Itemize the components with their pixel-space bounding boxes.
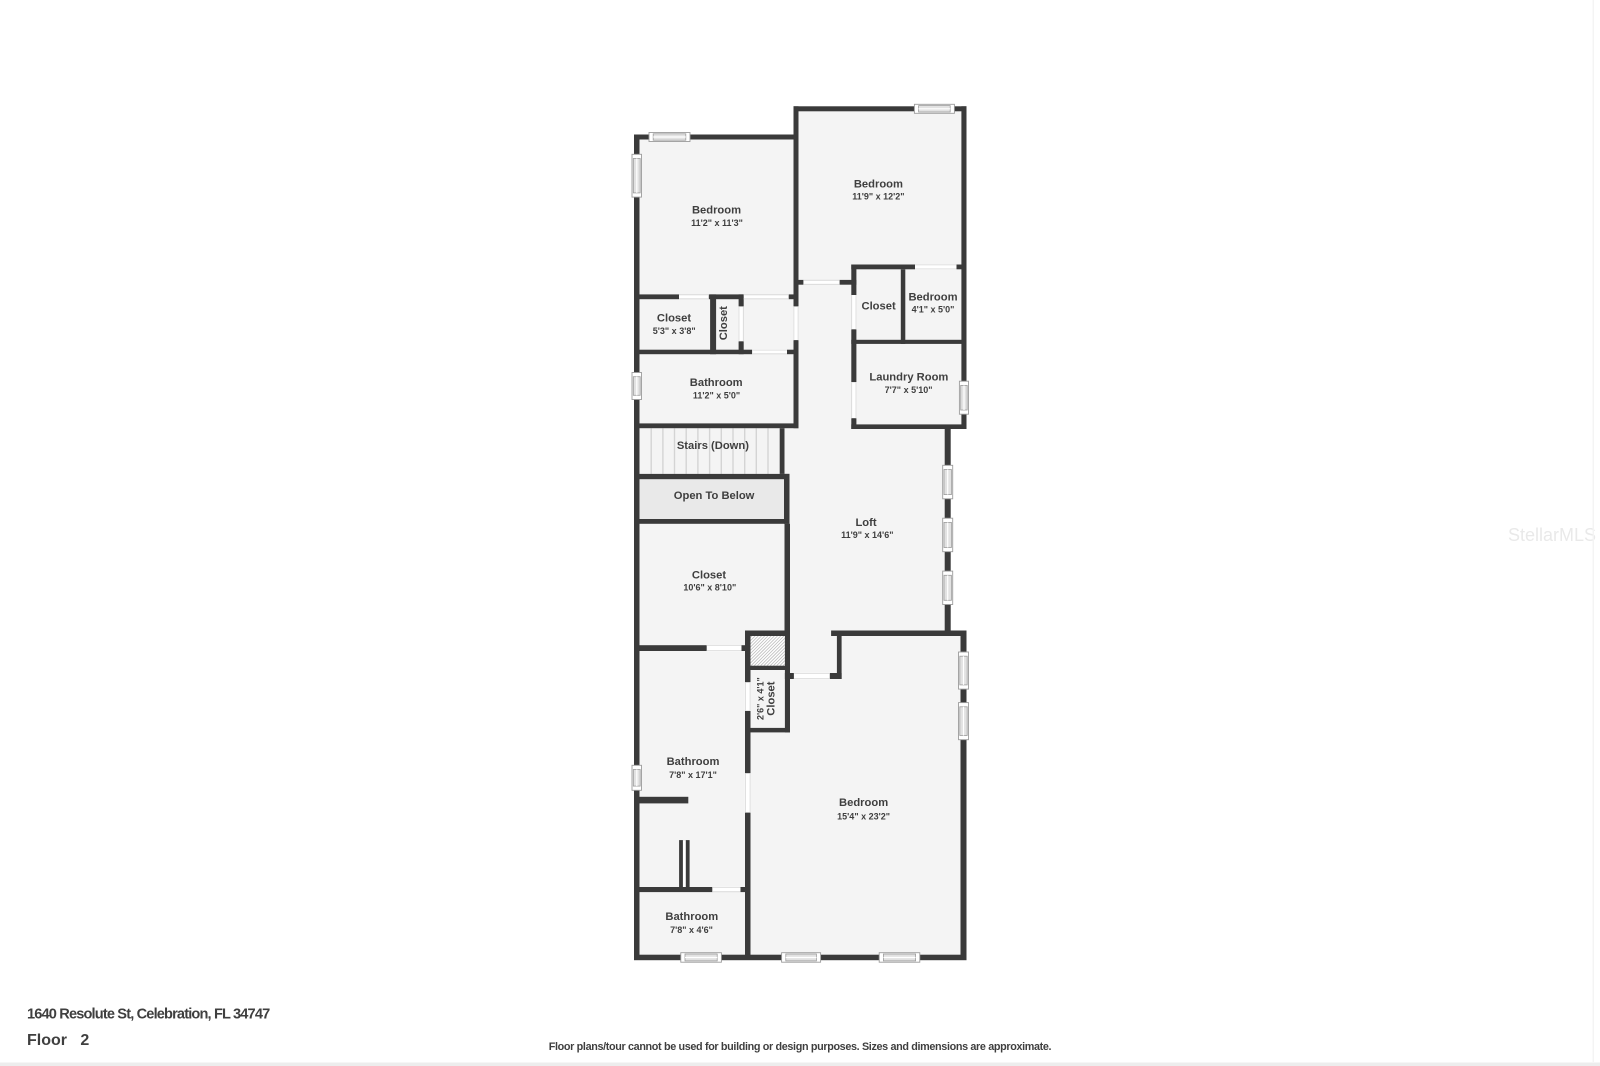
svg-text:11'2" x 11'3": 11'2" x 11'3" xyxy=(691,218,743,228)
svg-text:Closet: Closet xyxy=(718,306,730,340)
svg-text:5'3" x 3'8": 5'3" x 3'8" xyxy=(653,326,696,336)
svg-text:Stairs (Down): Stairs (Down) xyxy=(677,440,749,452)
svg-text:Open To Below: Open To Below xyxy=(674,490,755,502)
svg-text:4'1" x 5'0": 4'1" x 5'0" xyxy=(912,305,955,315)
svg-text:Bedroom: Bedroom xyxy=(908,292,957,304)
svg-text:15'4" x 23'2": 15'4" x 23'2" xyxy=(837,811,890,821)
svg-text:Bathroom: Bathroom xyxy=(665,911,718,923)
svg-text:11'9" x 12'2": 11'9" x 12'2" xyxy=(852,192,904,202)
svg-text:Bathroom: Bathroom xyxy=(690,377,743,389)
svg-text:7'8" x 4'6": 7'8" x 4'6" xyxy=(670,925,713,935)
svg-text:7'8" x 17'1": 7'8" x 17'1" xyxy=(669,770,717,780)
svg-text:Bathroom: Bathroom xyxy=(667,756,720,768)
svg-text:StellarMLS: StellarMLS xyxy=(1508,525,1596,545)
svg-text:11'2" x 5'0": 11'2" x 5'0" xyxy=(693,391,740,401)
svg-text:Floor plans/tour cannot be use: Floor plans/tour cannot be used for buil… xyxy=(549,1041,1052,1053)
svg-text:Loft: Loft xyxy=(855,517,876,529)
svg-text:10'6" x 8'10": 10'6" x 8'10" xyxy=(683,583,736,593)
svg-text:Closet: Closet xyxy=(692,569,726,581)
svg-text:Floor 2: Floor 2 xyxy=(27,1032,89,1049)
svg-text:Closet: Closet xyxy=(766,681,778,715)
svg-text:11'9" x 14'6": 11'9" x 14'6" xyxy=(841,530,893,540)
svg-text:1640 Resolute St, Celebration,: 1640 Resolute St, Celebration, FL 34747 xyxy=(27,1006,270,1022)
svg-text:Laundry Room: Laundry Room xyxy=(869,372,948,384)
svg-text:Bedroom: Bedroom xyxy=(692,204,741,216)
svg-text:7'7" x 5'10": 7'7" x 5'10" xyxy=(885,385,933,395)
svg-text:Closet: Closet xyxy=(861,301,895,313)
svg-text:Closet: Closet xyxy=(657,313,691,325)
svg-text:2'6" x 4'1": 2'6" x 4'1" xyxy=(756,677,766,720)
svg-text:Bedroom: Bedroom xyxy=(839,797,888,809)
svg-text:Bedroom: Bedroom xyxy=(854,179,903,191)
